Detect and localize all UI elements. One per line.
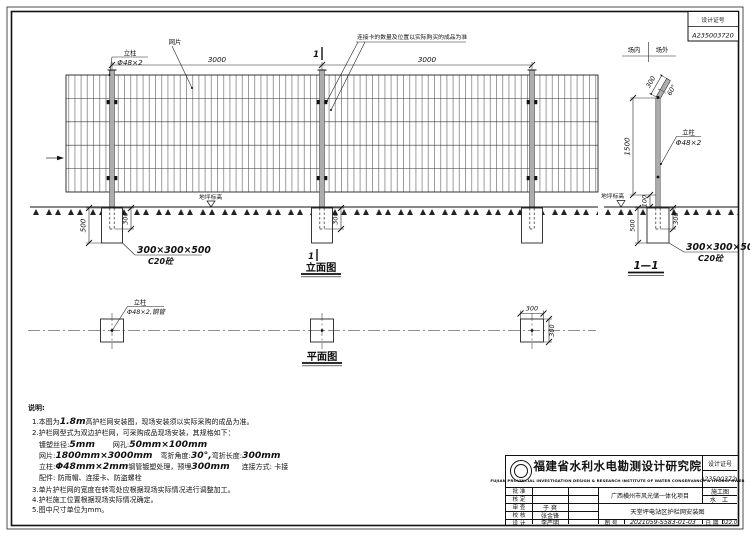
dim-300: 300 — [672, 212, 680, 224]
post-callout-spec: Φ48×2 — [117, 58, 143, 67]
clip-note-text: 连接卡的数量及位置以实际购买的成品为准 — [357, 33, 467, 41]
section-cut-mark-bottom: 1 — [308, 249, 317, 262]
verify-label: 核 定 — [506, 495, 532, 503]
spec-embed-value: 300mm — [191, 461, 229, 472]
section-mark-label: 1 — [313, 50, 319, 60]
note-3: 3.单片护栏网的宽度在转弯处应根据现场实际情况进行调整加工。 — [32, 485, 235, 495]
post-callout-spec: Φ48×2,钢管 — [127, 308, 167, 316]
spec-bend-length-label: 弯折长度: — [212, 452, 242, 460]
date-value: 2022.03 — [722, 519, 737, 526]
dim-300: 300 — [122, 212, 130, 224]
inside-outside-divider: 场内 场外 — [622, 42, 676, 62]
note-5: 5.图中尺寸单位为mm。 — [32, 505, 108, 515]
foundation-material: C20砼 — [698, 254, 725, 263]
ground-level-label: 地坪标高 — [199, 193, 222, 207]
dim-300-mid: 300 — [332, 212, 340, 224]
spec-wire: 镀塑丝径:5mm网孔:50mm×100mm — [39, 440, 207, 450]
outside-label: 场外 — [656, 45, 669, 54]
plan-dims: 300 300 — [518, 305, 557, 346]
check-label: 校 核 — [506, 511, 532, 519]
note-4: 4.护栏施工位置根据现场实际情况确定。 — [32, 495, 158, 505]
drawing-title: 天堂坪电站区护栏网安装图 — [598, 503, 737, 519]
corner-box-label: 设计证号 — [701, 16, 724, 24]
height-dim: 1500 100 — [623, 95, 656, 210]
section-ground: 地坪标高 — [601, 192, 738, 216]
ground-label-text: 地坪标高 — [601, 192, 624, 200]
dim-300-h: 300 — [548, 324, 556, 336]
spec-bend-angle-value: 30°, — [191, 450, 212, 461]
date-label: 日 期 — [702, 519, 722, 526]
cert-label: 设计证号 — [703, 456, 737, 471]
note-2: 2.护栏网型式为双边护栏网，可采购成品现场安装，其规格如下： — [32, 428, 235, 438]
foundation-size: 300×300×500 — [137, 245, 211, 256]
dim-100: 100 — [641, 195, 649, 207]
spec-panel-label: 网片: — [39, 452, 55, 460]
note-1-value: 1.8m — [60, 416, 86, 427]
spec-connection: 连接方式: 卡接 — [242, 463, 289, 471]
figure-number-label: 图 号 — [598, 519, 624, 526]
spec-panel-value: 1800mm×3000mm — [55, 450, 152, 461]
corner-box: 设计证号 A235003720 — [688, 12, 739, 42]
design-name: 李严明 — [532, 519, 568, 526]
foundation-size: 300×300×500 — [686, 242, 750, 253]
edge-arrow-head — [57, 156, 64, 160]
project-name: 广西横州市风光储一体化项目 — [598, 487, 702, 503]
institute-name-en: FUJIAN PROVINCIAL INVESTIGATION DESIGN &… — [534, 475, 701, 485]
plan-view: 立柱 Φ48×2,钢管 300 300 平面图 — [28, 298, 596, 366]
notes-heading: 说明: — [28, 403, 45, 413]
spec-bend-length-value: 300mm — [242, 450, 280, 461]
title-block: 福建省水利水电勘测设计研究院 FUJIAN PROVINCIAL INVESTI… — [505, 455, 739, 526]
figure-number: 2021059-S583-01-03 — [624, 519, 702, 526]
spec-post-value: Φ48mm×2mm — [55, 461, 128, 472]
spec-accessories: 配件: 防雨帽、连接卡、防盗螺栓 — [39, 473, 142, 483]
plan-post-callout: 立柱 Φ48×2,钢管 — [113, 298, 167, 330]
specialty: 水 工 — [703, 495, 737, 503]
dim-1500: 1500 — [623, 137, 632, 156]
institute-name: 福建省水利水电勘测设计研究院 — [534, 458, 701, 474]
spec-bend-angle-label: 弯折角度: — [161, 452, 191, 460]
review-label: 审 查 — [506, 503, 532, 511]
design-label: 设 计 — [506, 519, 532, 526]
post-callout-label: 立柱 — [134, 298, 147, 307]
post-callout-spec: Φ48×2 — [676, 138, 702, 147]
section-mark-label: 1 — [308, 252, 314, 262]
drawing-sheet: 设计证号 A235003720 3000 3000 1 1 — [0, 0, 750, 536]
elevation-view: 3000 3000 1 1 立柱 Φ48×2 网片 连接卡的数量及位置以实际购买… — [30, 33, 598, 277]
foundation-block — [312, 208, 333, 243]
dim-300-w: 300 — [526, 305, 538, 313]
ground-label-text: 地坪标高 — [199, 193, 222, 201]
spec-wire-label: 镀塑丝径: — [39, 441, 69, 449]
note-1-c: 高护栏网安装图，现场安装须以实际采购的成品为准。 — [86, 418, 254, 426]
spec-panel: 网片:1800mm×3000mm弯折角度:30°,弯折长度:300mm — [39, 451, 280, 461]
inside-label: 场内 — [628, 45, 641, 54]
fence-mesh — [66, 75, 598, 192]
approve-label: 批 准 — [506, 487, 532, 495]
mesh-callout-label: 网片 — [169, 37, 182, 46]
foundation-callout: 300×300×500 C20砼 — [123, 243, 212, 266]
level-symbol — [207, 201, 215, 207]
span-dim-2: 3000 — [418, 55, 437, 64]
section-post — [656, 78, 671, 207]
spec-post: 立柱:Φ48mm×2mm钢管镀塑处理，预埋300mm连接方式: 卡接 — [39, 462, 288, 472]
review-name: 于 爽 — [532, 503, 568, 511]
dim-500: 500 — [79, 218, 88, 232]
post-callout-label: 立柱 — [682, 128, 695, 137]
elevation-title: 立面图 — [301, 261, 341, 277]
stage: 施工图 — [703, 487, 737, 495]
foundation-block — [102, 208, 123, 243]
section-view: 场内 场外 300 60° 1500 100 — [601, 42, 750, 275]
level-symbol — [617, 201, 625, 208]
section-foundation — [647, 208, 669, 243]
plan-title-text: 平面图 — [307, 351, 338, 363]
foundation-block — [522, 208, 543, 243]
spec-post-label: 立柱: — [39, 463, 55, 471]
cert-no: A235003720 — [703, 471, 737, 487]
span-dim-1: 3000 — [208, 55, 227, 64]
check-name: 张金锋 — [532, 511, 568, 519]
spec-aperture-value: 50mm×100mm — [129, 439, 207, 450]
arm-dim-text: 300 — [644, 75, 657, 90]
section-cut-mark-top: 1 — [313, 47, 322, 60]
section-post-callout: 立柱 Φ48×2 — [660, 128, 702, 166]
section-title: 1—1 — [628, 260, 664, 275]
post-callout-label: 立柱 — [124, 48, 137, 57]
plan-title: 平面图 — [302, 351, 342, 366]
note-1-a: 1.本图为 — [32, 418, 60, 426]
note-1: 1.本图为1.8m高护栏网安装图，现场安装须以实际采购的成品为准。 — [32, 417, 254, 427]
spec-wire-value: 5mm — [69, 439, 95, 450]
dim-500: 500 — [629, 219, 637, 231]
spec-aperture-label: 网孔: — [113, 441, 129, 449]
foundation-material: C20砼 — [148, 257, 175, 266]
section-title-text: 1—1 — [633, 260, 658, 272]
elevation-title-text: 立面图 — [306, 261, 337, 274]
corner-box-value: A235003720 — [691, 32, 734, 40]
spec-post-treatment: 钢管镀塑处理，预埋 — [128, 463, 191, 471]
